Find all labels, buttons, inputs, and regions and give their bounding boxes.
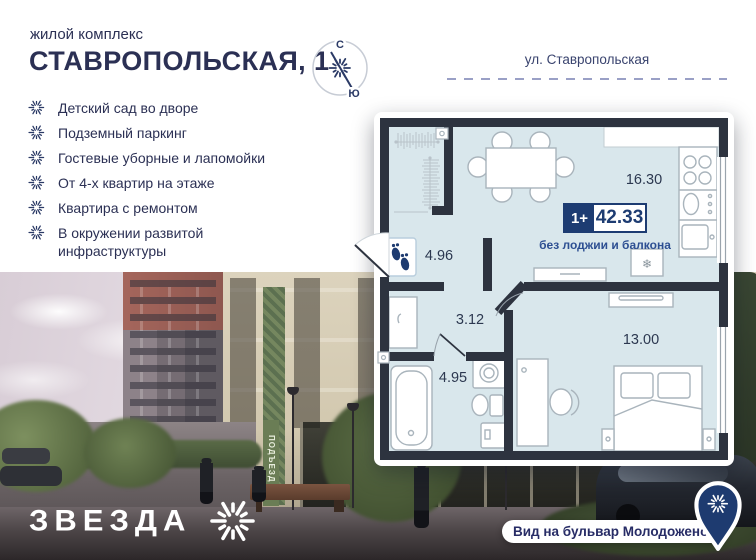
bathtub <box>391 366 432 450</box>
parked-car <box>2 448 50 464</box>
hall-dresser <box>389 297 417 348</box>
apartment-badge: 1+ 42.33 <box>563 203 647 233</box>
tv-stand <box>609 293 673 307</box>
feature-label: Детский сад во дворе <box>58 99 198 117</box>
feature-item: В окружении развитой инфраструктуры <box>28 224 328 260</box>
floorplan-card: ❄ <box>374 112 734 466</box>
rooms-count-badge: 1+ <box>565 205 594 231</box>
features-list: Детский сад во дворе Подземный паркинг Г… <box>28 99 328 267</box>
feature-item: Квартира с ремонтом <box>28 199 328 217</box>
feature-label: В окружении развитой инфраструктуры <box>58 224 293 260</box>
feature-label: Квартира с ремонтом <box>58 199 198 217</box>
bath-cabinet <box>481 423 508 448</box>
feature-item: Детский сад во дворе <box>28 99 328 117</box>
sunburst-icon <box>28 149 45 166</box>
street-dashed-line <box>447 78 727 80</box>
location-pin-icon <box>690 477 746 553</box>
sideboard <box>534 268 606 281</box>
street-label: ул. Ставропольская <box>447 52 727 67</box>
floorplan-drawing: ❄ <box>374 112 734 466</box>
washing-machine <box>473 359 505 388</box>
total-area-value: 42.33 <box>594 205 645 231</box>
area-label-bedroom: 13.00 <box>618 332 664 348</box>
window-kitchen <box>717 157 730 263</box>
compass-icon: С Ю <box>309 35 371 99</box>
sunburst-icon <box>28 199 45 216</box>
sunburst-icon <box>28 174 45 191</box>
bed <box>602 366 715 451</box>
compass-north-label: С <box>336 39 344 51</box>
compass-south-label: Ю <box>348 88 359 99</box>
area-label-bathroom: 4.95 <box>431 370 475 386</box>
feature-label: От 4-х квартир на этаже <box>58 174 215 192</box>
feature-item: Подземный паркинг <box>28 124 328 142</box>
sunburst-icon <box>28 224 45 241</box>
bench-legs <box>256 500 344 512</box>
complex-title: СТАВРОПОЛЬСКАЯ, 1 <box>29 46 329 77</box>
entrance-door <box>355 233 389 277</box>
feature-label: Гостевые уборные и лапомойки <box>58 149 265 167</box>
fridge: ❄ <box>631 249 663 276</box>
brand-star-icon <box>209 497 257 545</box>
sunburst-icon <box>28 99 45 116</box>
feature-item: От 4-х квартир на этаже <box>28 174 328 192</box>
flyer: жилой комплекс СТАВРОПОЛЬСКАЯ, 1 ул. Ста… <box>0 0 756 560</box>
area-label-kitchen-living: 16.30 <box>621 172 667 188</box>
area-label-hall: 3.12 <box>448 312 492 328</box>
complex-subtitle: жилой комплекс <box>30 26 143 43</box>
kitchen-cabinets <box>604 127 719 147</box>
area-label-hallway: 4.96 <box>417 248 461 264</box>
tree <box>84 418 176 488</box>
fridge-snowflake-icon: ❄ <box>642 257 652 271</box>
feature-label: Подземный паркинг <box>58 124 187 142</box>
sunburst-icon <box>28 124 45 141</box>
street-lamp <box>352 410 354 508</box>
parked-car <box>0 466 62 486</box>
brand-name: ЗВЕЗДА <box>29 504 191 539</box>
badge-note: без лоджии и балкона <box>523 238 687 252</box>
brand-logo: ЗВЕЗДА <box>29 497 257 545</box>
entry-mat-footprints <box>386 238 416 276</box>
feature-item: Гостевые уборные и лапомойки <box>28 149 328 167</box>
window-bedroom <box>717 327 730 433</box>
pedestrian <box>414 460 429 528</box>
